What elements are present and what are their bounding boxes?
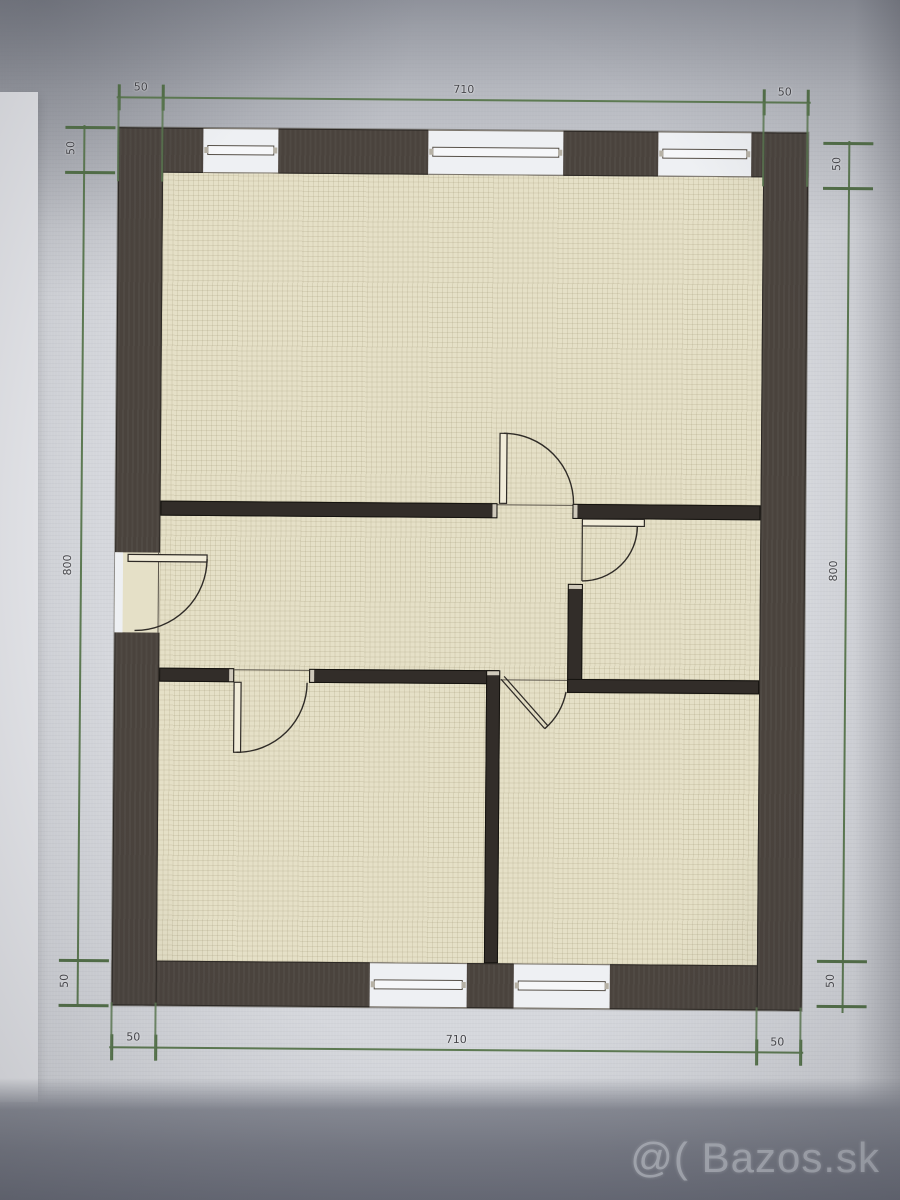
watermark-text: @( Bazos.sk: [0, 1134, 880, 1182]
dim-label-bottom-width: 710: [431, 1034, 481, 1046]
dim-label-right-top: 50: [831, 144, 843, 184]
bathroom-door-leaf-open: [582, 519, 644, 526]
entrance-door-arc: [135, 558, 208, 631]
lower-left-room-door-arc: [237, 682, 308, 753]
dimension-line-left: [77, 125, 86, 1007]
entrance-door-leaf: [128, 554, 207, 562]
floor-plan-drawing: 50 710 50 50 710 50 50 800 50 50 800 50: [0, 0, 900, 1200]
dim-label-left-height: 800: [62, 543, 74, 587]
dim-label-left-top: 50: [65, 128, 77, 168]
door-swings-layer: [112, 127, 809, 1010]
dim-label-top-left: 50: [124, 81, 158, 93]
lower-right-room-door-arc: [545, 692, 566, 729]
screen-photo: 50 710 50 50 710 50 50 800 50 50 800 50: [0, 0, 900, 1200]
dim-label-bottom-right: 50: [760, 1036, 794, 1048]
dim-label-bottom-left: 50: [116, 1031, 150, 1043]
dimension-tick: [65, 171, 115, 174]
upper-room-door-leaf: [500, 433, 508, 503]
dim-label-right-height: 800: [828, 549, 840, 593]
dimension-line-bottom: [109, 1046, 803, 1053]
dimension-line-top: [117, 96, 811, 103]
dimension-tick: [59, 1004, 109, 1007]
bathroom-door-arc: [582, 526, 637, 581]
upper-room-door-arc: [504, 433, 575, 504]
dim-label-top-right: 50: [768, 86, 802, 98]
dim-label-top-width: 710: [439, 84, 489, 96]
dim-label-right-bottom: 50: [825, 961, 837, 1001]
lower-left-room-door-leaf: [234, 682, 242, 752]
lower-right-room-door-leaf: [501, 676, 548, 728]
dimension-tick: [823, 187, 873, 190]
dimension-line-right: [842, 141, 851, 1013]
dimension-tick: [817, 1005, 867, 1008]
dimension-extension: [806, 103, 809, 187]
dim-label-left-bottom: 50: [59, 961, 71, 1001]
